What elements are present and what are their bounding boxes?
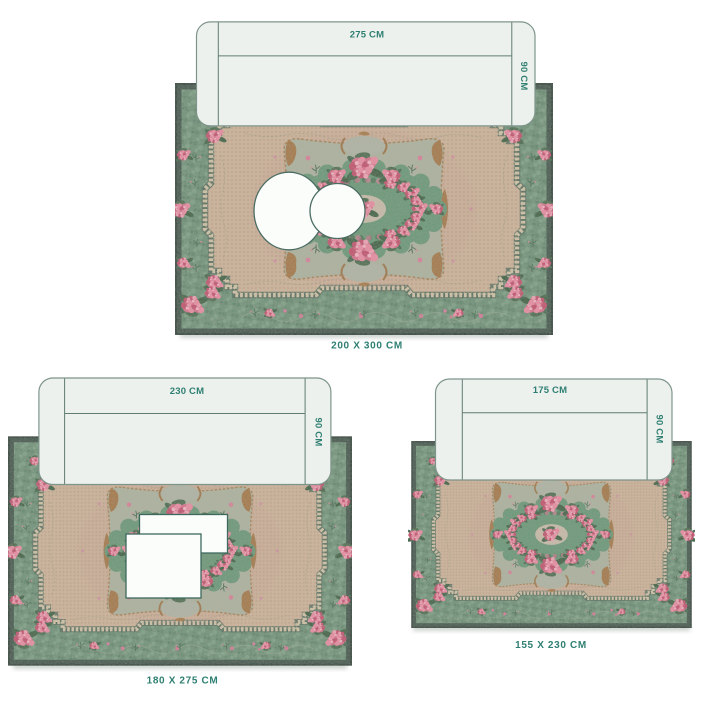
svg-text:275 CM: 275 CM bbox=[350, 30, 384, 41]
svg-text:230 CM: 230 CM bbox=[170, 386, 204, 397]
svg-text:175 CM: 175 CM bbox=[533, 385, 567, 396]
svg-text:200 X 300 CM: 200 X 300 CM bbox=[331, 341, 403, 352]
svg-text:90 CM: 90 CM bbox=[313, 418, 324, 447]
svg-text:90 CM: 90 CM bbox=[518, 62, 529, 91]
svg-text:155 X 230 CM: 155 X 230 CM bbox=[515, 640, 587, 651]
svg-text:180 X 275 CM: 180 X 275 CM bbox=[147, 676, 219, 687]
svg-text:90 CM: 90 CM bbox=[654, 415, 665, 444]
